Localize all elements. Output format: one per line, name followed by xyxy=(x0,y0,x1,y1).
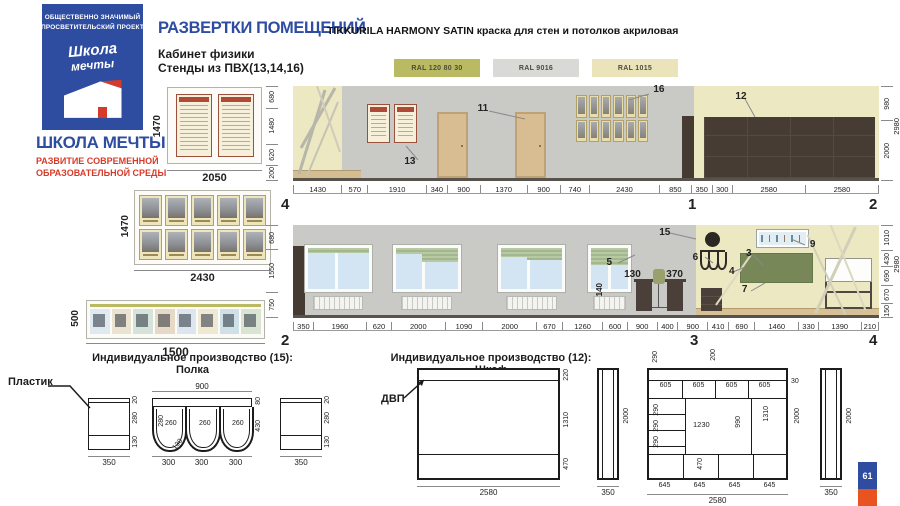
chair-base xyxy=(652,307,667,308)
portrait-frame xyxy=(626,120,636,142)
page-number-accent xyxy=(858,489,877,506)
dimension-value: 680 xyxy=(269,232,276,244)
shelf-side-view xyxy=(280,398,322,450)
dim: 605 xyxy=(715,382,748,389)
portrait-frame xyxy=(589,120,599,142)
dimension-segment: 570 xyxy=(341,185,367,194)
dimension-segment: 2580 xyxy=(805,185,879,194)
dimension-segment: 1010 xyxy=(881,225,893,250)
portrait-frame xyxy=(601,95,611,117)
dim: 1310 xyxy=(563,412,570,428)
dim: 30 xyxy=(791,378,799,385)
dim: 80 xyxy=(255,397,262,405)
org-name: ШКОЛА МЕЧТЫ xyxy=(36,133,166,153)
dimension-segment: 600 xyxy=(602,322,626,331)
ral-swatches: RAL 120 80 30 RAL 9016 RAL 1015 xyxy=(394,59,678,77)
material-label-plastic: Пластик xyxy=(8,376,53,388)
dimension-value: 350 xyxy=(297,322,310,331)
dimension-segment: 200 xyxy=(266,165,278,181)
dim: 1310 xyxy=(763,406,770,422)
dim: 2000 xyxy=(623,408,630,424)
dimension-value: 300 xyxy=(716,185,729,194)
desk-pedestal xyxy=(636,282,652,312)
dimension-value: 2580 xyxy=(760,185,777,194)
dimension-segment: 680 xyxy=(266,225,278,249)
dimension-segment: 1260 xyxy=(562,322,603,331)
dimension-segment: 1480 xyxy=(266,108,278,144)
dimension-segment: 400 xyxy=(657,322,678,331)
bench xyxy=(293,170,361,178)
dark-wall-strip xyxy=(682,116,694,178)
dim: 280 xyxy=(158,415,165,427)
dim: 645 xyxy=(647,482,682,489)
paint-spec: TIKKURILA HARMONY SATIN краска для стен … xyxy=(327,25,678,37)
plinth xyxy=(696,308,879,315)
dimension-value: 600 xyxy=(609,322,622,331)
stands-note: Стенды из ПВХ(13,14,16) xyxy=(158,61,304,75)
portrait-frame xyxy=(191,195,214,226)
dimension-value: 900 xyxy=(686,322,699,331)
dimension-value: 2000 xyxy=(501,322,518,331)
dimension-segment: 670 xyxy=(881,285,893,303)
portrait-frame xyxy=(613,95,623,117)
dim: 2580 xyxy=(417,488,560,497)
alphabet-board xyxy=(176,94,212,157)
dimension-segment: 1430 xyxy=(293,185,341,194)
label-blinds-5: 5 xyxy=(607,257,613,268)
logo-script-word2: мечты xyxy=(70,57,114,73)
dim: 350 xyxy=(820,488,842,497)
material-label-dvp: ДВП xyxy=(381,393,405,405)
banner-photo-cell xyxy=(220,309,240,334)
dim: 990 xyxy=(735,416,742,428)
cabinet-side-view xyxy=(820,368,842,480)
dim: 2000 xyxy=(794,408,801,424)
banner-photo-cell xyxy=(155,309,175,334)
window xyxy=(393,245,461,293)
dimension-value: 2000 xyxy=(410,322,427,331)
dimension-value: 1370 xyxy=(495,185,512,194)
dim: 20 xyxy=(132,396,139,404)
alphabet-board xyxy=(218,94,254,157)
window xyxy=(498,245,566,293)
desk-pedestal xyxy=(667,282,683,312)
axis-marker: 4 xyxy=(281,196,289,213)
dimension-value: 900 xyxy=(457,185,470,194)
dim: 645 xyxy=(682,482,717,489)
ral-swatch: RAL 120 80 30 xyxy=(394,59,480,77)
dim: 900 xyxy=(152,382,252,391)
portrait-frame xyxy=(165,195,188,226)
dimension-segment: 900 xyxy=(677,322,707,331)
dim: 350 xyxy=(597,488,619,497)
banner-photo-cell xyxy=(133,309,153,334)
portrait-frame xyxy=(191,229,214,260)
dimension-value: 1910 xyxy=(389,185,406,194)
portrait-frame xyxy=(638,95,648,117)
elevation-top-dimensions: 1430570191034090013709007402430850350300… xyxy=(293,184,879,194)
display-9 xyxy=(757,230,807,246)
label-sill-140: 140 xyxy=(595,283,604,296)
dimension-value: 340 xyxy=(431,185,444,194)
portrait-frame xyxy=(139,229,162,260)
dim: 300 xyxy=(219,458,252,467)
elevation-top-left-dims: 6801480620200 xyxy=(266,86,278,181)
dim: 260 xyxy=(199,420,211,427)
dim: 220 xyxy=(563,369,570,381)
portrait-frame xyxy=(626,95,636,117)
dimension-value: 330 xyxy=(802,322,815,331)
dimension-value: 2000 xyxy=(884,143,891,159)
axis-marker: 2 xyxy=(281,332,289,349)
portrait-frame xyxy=(165,229,188,260)
dim: 645 xyxy=(717,482,752,489)
dimension-value: 980 xyxy=(884,98,891,110)
dimension-value: 1260 xyxy=(574,322,591,331)
label-door-11: 11 xyxy=(478,103,489,114)
axis-marker: 4 xyxy=(869,332,877,349)
cabinet-side-view xyxy=(597,368,619,480)
dim: 130 xyxy=(324,436,331,448)
radiator xyxy=(313,296,363,310)
dimension-segment: 410 xyxy=(707,322,728,331)
banner-photo-cell xyxy=(112,309,132,334)
logo-banner-text: ОБЩЕСТВЕННО ЗНАЧИМЫЙ ПРОСВЕТИТЕЛЬСКИЙ ПР… xyxy=(41,13,144,33)
dark-wall-strip xyxy=(293,246,305,315)
label-display-9: 9 xyxy=(810,239,816,250)
door xyxy=(515,112,546,178)
stand-alphabet-width: 2050 xyxy=(167,172,262,184)
shelf-6-arches xyxy=(700,252,726,270)
dimension-segment: 2000 xyxy=(482,322,536,331)
dimension-segment: 750 xyxy=(266,292,278,318)
ral-swatch: RAL 1015 xyxy=(592,59,678,77)
dim: 470 xyxy=(563,458,570,470)
dim: 260 xyxy=(165,420,177,427)
dim: 645 xyxy=(752,482,787,489)
org-tagline: РАЗВИТИЕ СОВРЕМЕННОЙ ОБРАЗОВАТЕЛЬНОЙ СРЕ… xyxy=(36,156,166,179)
shelf-side-view xyxy=(88,398,130,450)
dimension-value: 740 xyxy=(569,185,582,194)
portrait-frame xyxy=(576,95,586,117)
dimension-value: 1960 xyxy=(332,322,349,331)
stand-portraits xyxy=(134,190,271,265)
dim: 300 xyxy=(152,458,185,467)
portrait-frame xyxy=(243,195,266,226)
dim: 605 xyxy=(748,382,781,389)
label-wardrobe-12: 12 xyxy=(735,91,746,102)
dim: 350 xyxy=(88,458,130,467)
banner-photo-cell xyxy=(177,309,197,334)
dimension-segment: 620 xyxy=(366,322,391,331)
dimension-value: 400 xyxy=(661,322,674,331)
portrait-frame xyxy=(217,229,240,260)
label-wall-4: 4 xyxy=(729,266,735,277)
dim: 605 xyxy=(649,382,682,389)
house-icon xyxy=(64,80,122,118)
dim: 280 xyxy=(324,412,331,424)
dimension-value: 680 xyxy=(269,91,276,103)
label-portraits-16: 16 xyxy=(653,84,664,95)
label-cabinet-7: 7 xyxy=(742,284,748,295)
dimension-value: 620 xyxy=(373,322,386,331)
axis-marker: 1 xyxy=(688,196,696,213)
axis-marker: 3 xyxy=(690,332,698,349)
dimension-segment: 850 xyxy=(659,185,691,194)
stand-portraits-width: 2430 xyxy=(134,272,271,284)
portrait-frame xyxy=(243,229,266,260)
dim: 290 xyxy=(652,351,659,363)
dimension-value: 620 xyxy=(269,149,276,161)
elevation-bottom-total-height: 2980 xyxy=(892,256,900,273)
portrait-frame xyxy=(576,120,586,142)
dimension-value: 850 xyxy=(669,185,682,194)
banner-photo-cell xyxy=(241,309,261,334)
elevation-top-total-height: 2980 xyxy=(892,118,900,135)
window xyxy=(305,245,372,293)
room-name: Кабинет физики xyxy=(158,47,255,61)
dimension-segment: 2430 xyxy=(589,185,659,194)
dimension-value: 1090 xyxy=(456,322,473,331)
banner-photo-cell xyxy=(198,309,218,334)
dim: 280 xyxy=(132,412,139,424)
stand-portraits-height: 1470 xyxy=(120,215,131,237)
elevation-bottom-left-dims: 6801550750 xyxy=(266,225,278,318)
dimension-value: 570 xyxy=(349,185,362,194)
dimension-segment: 1550 xyxy=(266,249,278,292)
dimension-value: 690 xyxy=(735,322,748,331)
dim: 130 xyxy=(132,436,139,448)
dimension-value: 900 xyxy=(636,322,649,331)
dim: 1230 xyxy=(693,420,710,429)
dimension-segment: 900 xyxy=(447,185,480,194)
dimension-segment: 1370 xyxy=(480,185,527,194)
stand-alphabet-height: 1470 xyxy=(152,115,163,137)
door xyxy=(437,112,468,178)
portrait-frame xyxy=(601,120,611,142)
dimension-segment: 1390 xyxy=(818,322,861,331)
shelf-front-band xyxy=(152,398,252,407)
dimension-value: 200 xyxy=(269,167,276,179)
dimension-value: 150 xyxy=(884,305,891,317)
elevation-top-wall: 13 11 16 12 xyxy=(293,86,879,181)
dim: 200 xyxy=(710,349,717,361)
shelf-drawing-title: Индивидуальное производство (15): Полка xyxy=(85,352,300,376)
dimension-value: 1480 xyxy=(269,118,276,134)
dim: 290 xyxy=(653,404,660,416)
dimension-segment: 680 xyxy=(266,86,278,108)
elevation-bottom-dimensions: 3501960620200010902000670126060090040090… xyxy=(293,321,879,331)
dimension-value: 1550 xyxy=(269,263,276,279)
dimension-segment: 980 xyxy=(881,86,893,120)
dim: 605 xyxy=(682,382,715,389)
dimension-segment: 1460 xyxy=(754,322,798,331)
dimension-value: 1430 xyxy=(309,185,326,194)
dimension-value: 350 xyxy=(695,185,708,194)
label-board-3: 3 xyxy=(746,248,752,259)
dim: 290 xyxy=(653,436,660,448)
stand-13-board xyxy=(367,104,390,143)
page-number: 61 xyxy=(858,462,877,489)
dimension-value: 690 xyxy=(884,270,891,282)
dimension-value: 2580 xyxy=(834,185,851,194)
dimension-value: 210 xyxy=(864,322,877,331)
dimension-segment: 350 xyxy=(691,185,712,194)
dimension-segment: 620 xyxy=(266,144,278,165)
cabinet-front-view xyxy=(417,368,560,480)
cabinet-7 xyxy=(701,288,722,311)
stand-banner-height: 500 xyxy=(70,310,81,327)
dimension-value: 670 xyxy=(884,289,891,301)
dimension-segment: 900 xyxy=(527,185,560,194)
logo-banner: ОБЩЕСТВЕННО ЗНАЧИМЫЙ ПРОСВЕТИТЕЛЬСКИЙ ПР… xyxy=(42,4,143,130)
dim: 470 xyxy=(697,458,704,470)
dimension-value: 670 xyxy=(543,322,556,331)
dimension-segment: 150 xyxy=(881,303,893,318)
dimension-value: 410 xyxy=(712,322,725,331)
label-wall-15: 15 xyxy=(659,227,670,238)
axis-marker: 2 xyxy=(869,196,877,213)
shelf-front-arches xyxy=(152,407,252,452)
dimension-segment: 300 xyxy=(712,185,732,194)
dim: 430 xyxy=(255,420,262,432)
label-shelf-6: 6 xyxy=(693,252,699,263)
label-stand-13: 13 xyxy=(404,156,415,167)
dimension-value: 1460 xyxy=(768,322,785,331)
portrait-frame xyxy=(589,95,599,117)
dim: 2000 xyxy=(846,408,853,424)
portrait-frame xyxy=(139,195,162,226)
ral-swatch: RAL 9016 xyxy=(493,59,579,77)
dimension-segment: 1960 xyxy=(313,322,366,331)
stand-alphabet xyxy=(167,87,262,164)
dimension-segment: 350 xyxy=(293,322,313,331)
page: ОБЩЕСТВЕННО ЗНАЧИМЫЙ ПРОСВЕТИТЕЛЬСКИЙ ПР… xyxy=(0,0,900,506)
dimension-segment: 2000 xyxy=(391,322,445,331)
radiator xyxy=(401,296,453,310)
dimension-segment: 690 xyxy=(728,322,754,331)
dimension-value: 1010 xyxy=(884,230,891,246)
label-desk-130: 130 xyxy=(624,269,641,280)
chair-stem xyxy=(658,284,659,307)
dimension-segment: 900 xyxy=(627,322,657,331)
chair xyxy=(653,269,665,284)
banner-photo-cell xyxy=(90,309,110,334)
dim: 260 xyxy=(232,420,244,427)
dim: 300 xyxy=(185,458,218,467)
white-cabinet-frame xyxy=(825,282,872,309)
portrait-frame xyxy=(638,120,648,142)
dimension-segment: 340 xyxy=(426,185,447,194)
stand-13-board xyxy=(394,104,417,143)
dimension-value: 1390 xyxy=(831,322,848,331)
dimension-segment: 740 xyxy=(560,185,589,194)
portraits-wall xyxy=(575,94,649,143)
portrait-frame xyxy=(613,120,623,142)
radiator xyxy=(506,296,558,310)
portrait-frame xyxy=(217,195,240,226)
radiator xyxy=(593,296,626,310)
dimension-value: 2430 xyxy=(616,185,633,194)
wardrobe-12 xyxy=(704,117,875,178)
elevation-bottom-wall: 15 5 140 130 370 6 4 3 7 9 xyxy=(293,225,879,318)
dimension-segment: 670 xyxy=(536,322,562,331)
dimension-segment: 2580 xyxy=(732,185,805,194)
dimension-segment: 330 xyxy=(798,322,818,331)
dim: 2580 xyxy=(647,496,788,505)
dimension-value: 900 xyxy=(537,185,550,194)
stand-banner xyxy=(86,300,265,339)
white-cabinet xyxy=(825,258,872,281)
dimension-segment: 1910 xyxy=(367,185,426,194)
dim: 20 xyxy=(324,396,331,404)
dimension-segment: 1090 xyxy=(445,322,482,331)
dim: 350 xyxy=(280,458,322,467)
dimension-value: 430 xyxy=(884,253,891,265)
dim: 290 xyxy=(653,420,660,432)
label-gap-370: 370 xyxy=(666,269,683,280)
dimension-value: 750 xyxy=(269,299,276,311)
branch-panel xyxy=(293,86,342,178)
dimension-segment: 210 xyxy=(861,322,879,331)
